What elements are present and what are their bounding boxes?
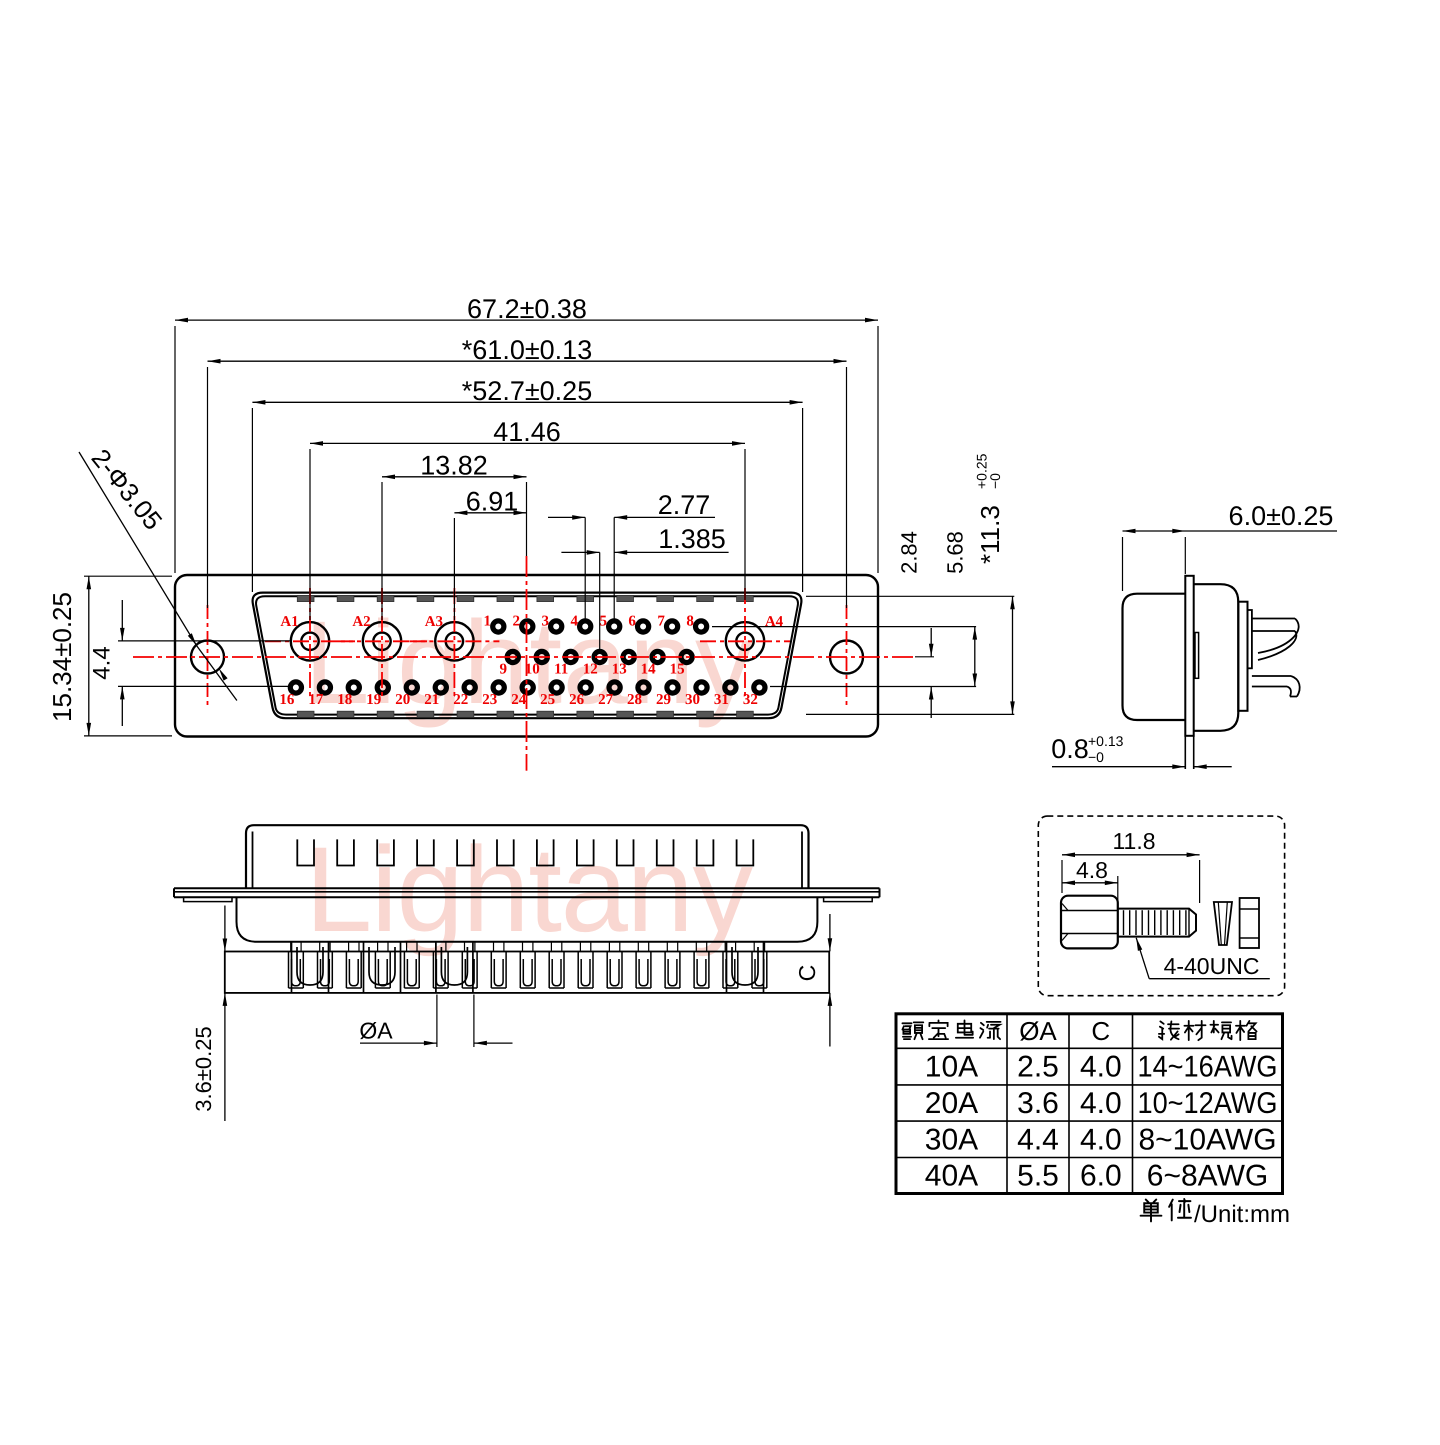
- svg-text:14~16AWG: 14~16AWG: [1138, 1051, 1278, 1084]
- svg-text:40A: 40A: [925, 1160, 978, 1193]
- svg-text:A2: A2: [352, 614, 370, 630]
- svg-text:−0: −0: [987, 473, 1003, 489]
- svg-text:26: 26: [569, 692, 585, 708]
- svg-text:*52.7±0.25: *52.7±0.25: [462, 376, 592, 406]
- svg-text:30A: 30A: [925, 1123, 978, 1156]
- svg-text:2.77: 2.77: [658, 490, 711, 520]
- svg-text:20A: 20A: [925, 1087, 978, 1120]
- svg-text:+0.13: +0.13: [1088, 733, 1124, 749]
- svg-text:15: 15: [670, 662, 685, 678]
- svg-text:28: 28: [627, 692, 642, 708]
- svg-text:41.46: 41.46: [493, 417, 561, 447]
- svg-text:22: 22: [453, 692, 468, 708]
- svg-text:4.4: 4.4: [1017, 1123, 1059, 1156]
- svg-text:9: 9: [500, 662, 508, 678]
- svg-text:0.8: 0.8: [1051, 734, 1089, 764]
- svg-text:15.34±0.25: 15.34±0.25: [47, 592, 77, 722]
- svg-text:30: 30: [685, 692, 700, 708]
- svg-text:C: C: [1091, 1016, 1110, 1046]
- svg-text:27: 27: [598, 692, 614, 708]
- svg-text:12: 12: [583, 662, 598, 678]
- svg-text:6~8AWG: 6~8AWG: [1147, 1160, 1268, 1193]
- svg-text:6.0±0.25: 6.0±0.25: [1229, 501, 1334, 531]
- svg-text:4.0: 4.0: [1080, 1123, 1122, 1156]
- svg-text:11: 11: [554, 662, 568, 678]
- svg-text:4.0: 4.0: [1080, 1087, 1122, 1120]
- svg-text:21: 21: [424, 692, 439, 708]
- svg-text:A4: A4: [765, 614, 784, 630]
- svg-text:A3: A3: [425, 614, 443, 630]
- svg-text:1.385: 1.385: [658, 524, 726, 554]
- svg-text:C: C: [794, 965, 820, 982]
- svg-text:14: 14: [641, 662, 657, 678]
- svg-text:17: 17: [308, 692, 324, 708]
- svg-text:4.4: 4.4: [89, 646, 116, 679]
- svg-text:4: 4: [570, 614, 578, 630]
- svg-text:19: 19: [366, 692, 381, 708]
- svg-text:2.5: 2.5: [1017, 1051, 1059, 1084]
- svg-text:16: 16: [279, 692, 295, 708]
- svg-text:13: 13: [612, 662, 627, 678]
- svg-text:23: 23: [482, 692, 497, 708]
- svg-text:8: 8: [686, 614, 694, 630]
- svg-text:32: 32: [743, 692, 758, 708]
- svg-text:10: 10: [525, 662, 540, 678]
- svg-text:ØA: ØA: [359, 1018, 393, 1044]
- svg-text:10A: 10A: [925, 1051, 978, 1084]
- svg-text:4-40UNC: 4-40UNC: [1164, 953, 1260, 979]
- svg-text:5.68: 5.68: [943, 531, 968, 574]
- svg-text:A1: A1: [280, 614, 298, 630]
- svg-text:ØA: ØA: [1019, 1016, 1057, 1046]
- svg-text:/Unit:mm: /Unit:mm: [1194, 1201, 1290, 1228]
- svg-text:25: 25: [540, 692, 555, 708]
- svg-text:3.6±0.25: 3.6±0.25: [191, 1026, 216, 1111]
- svg-text:−0: −0: [1088, 749, 1104, 765]
- svg-text:10~12AWG: 10~12AWG: [1138, 1087, 1278, 1120]
- svg-text:11.8: 11.8: [1112, 828, 1155, 854]
- svg-text:7: 7: [657, 614, 665, 630]
- svg-text:4.8: 4.8: [1076, 857, 1108, 883]
- svg-text:24: 24: [511, 692, 527, 708]
- svg-text:18: 18: [337, 692, 352, 708]
- svg-text:3: 3: [541, 614, 549, 630]
- svg-text:6.91: 6.91: [466, 487, 519, 517]
- svg-text:29: 29: [656, 692, 671, 708]
- svg-text:*11.3: *11.3: [975, 505, 1005, 564]
- svg-text:20: 20: [395, 692, 410, 708]
- svg-text:8~10AWG: 8~10AWG: [1138, 1123, 1276, 1156]
- svg-text:3.6: 3.6: [1017, 1087, 1059, 1120]
- svg-text:1: 1: [484, 614, 492, 630]
- svg-text:*61.0±0.13: *61.0±0.13: [462, 335, 592, 365]
- svg-text:6.0: 6.0: [1080, 1160, 1122, 1193]
- svg-text:4.0: 4.0: [1080, 1051, 1122, 1084]
- svg-text:31: 31: [714, 692, 729, 708]
- svg-text:2: 2: [513, 614, 521, 630]
- svg-text:13.82: 13.82: [420, 451, 488, 481]
- svg-text:2.84: 2.84: [897, 531, 922, 574]
- svg-text:5.5: 5.5: [1017, 1160, 1059, 1193]
- svg-text:5: 5: [599, 614, 607, 630]
- svg-text:6: 6: [628, 614, 636, 630]
